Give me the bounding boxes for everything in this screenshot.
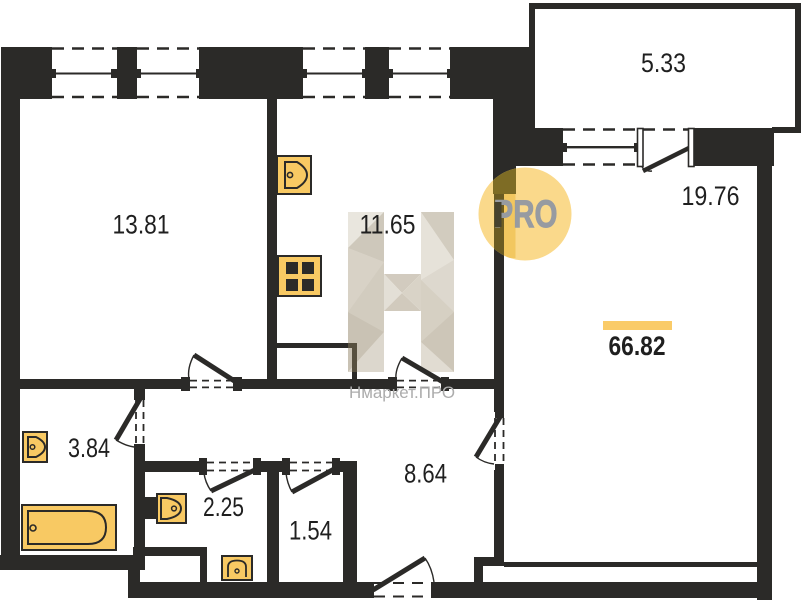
svg-text:3.84: 3.84 — [68, 433, 110, 463]
svg-text:19.76: 19.76 — [682, 181, 740, 211]
svg-text:11.65: 11.65 — [360, 210, 416, 240]
svg-text:8.64: 8.64 — [404, 459, 447, 489]
svg-text:5.33: 5.33 — [641, 48, 686, 78]
svg-text:Нмаркет.ПРО: Нмаркет.ПРО — [349, 384, 455, 402]
svg-text:PRO: PRO — [494, 193, 558, 236]
svg-text:13.81: 13.81 — [113, 210, 170, 240]
svg-text:1.54: 1.54 — [289, 516, 332, 546]
svg-text:2.25: 2.25 — [203, 492, 244, 522]
svg-text:66.82: 66.82 — [609, 331, 666, 361]
